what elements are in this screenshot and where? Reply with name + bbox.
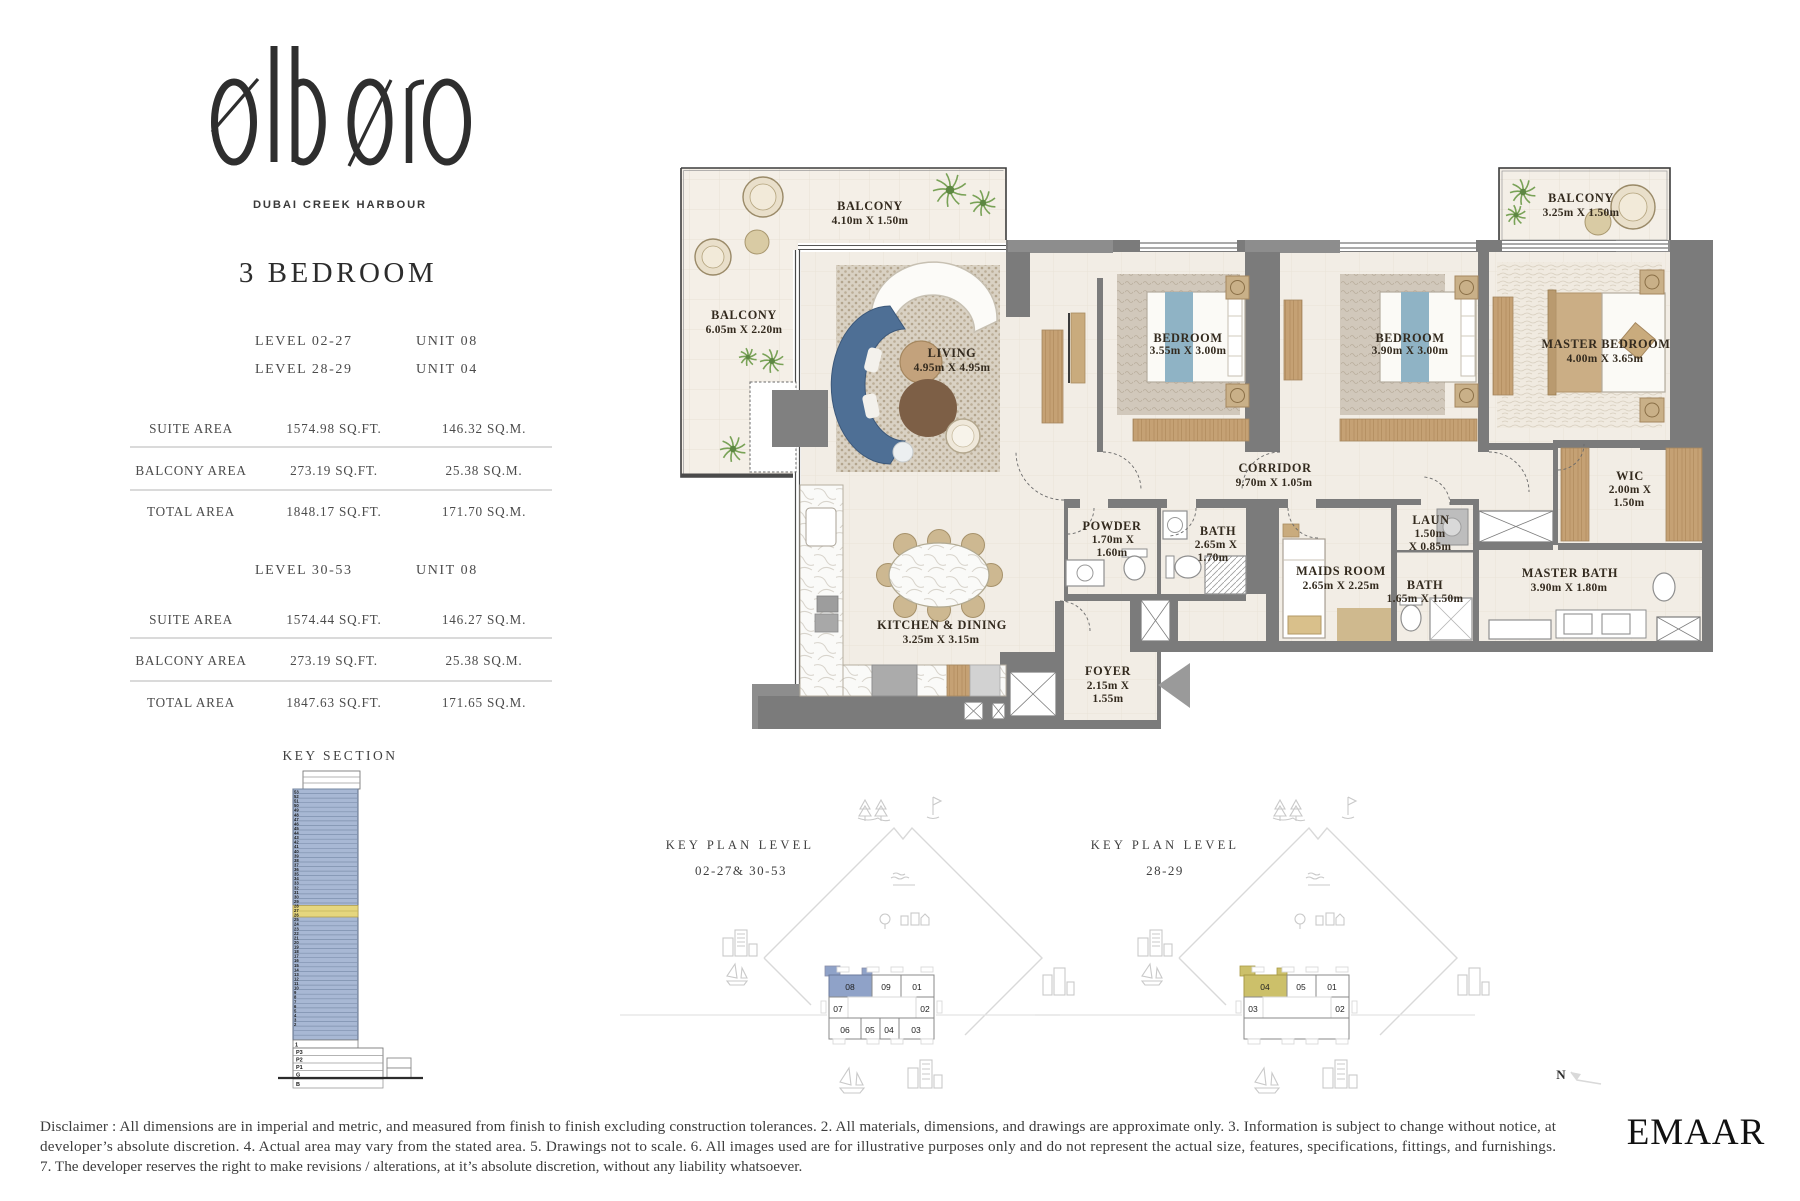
svg-text:P2: P2 [296, 1058, 303, 1064]
svg-text:N: N [1556, 1067, 1566, 1082]
svg-text:3.90m X 1.80m: 3.90m X 1.80m [1531, 582, 1608, 594]
svg-text:LEVEL 02-27: LEVEL 02-27 [255, 334, 353, 349]
svg-text:3.55m X 3.00m: 3.55m X 3.00m [1150, 345, 1227, 357]
svg-text:CORRIDOR: CORRIDOR [1238, 461, 1311, 475]
svg-text:BALCONY AREA: BALCONY AREA [135, 653, 246, 668]
svg-text:B: B [296, 1082, 300, 1088]
svg-text:171.70 SQ.M.: 171.70 SQ.M. [442, 504, 526, 519]
svg-text:BATH: BATH [1407, 578, 1443, 592]
svg-text:SUITE AREA: SUITE AREA [149, 421, 233, 436]
svg-text:28-29: 28-29 [1146, 863, 1184, 878]
svg-text:BATH: BATH [1200, 524, 1236, 538]
svg-text:06: 06 [840, 1025, 850, 1035]
svg-text:273.19 SQ.FT.: 273.19 SQ.FT. [290, 463, 378, 478]
svg-text:MASTER BATH: MASTER BATH [1522, 566, 1618, 580]
svg-text:FOYER: FOYER [1085, 664, 1131, 678]
svg-text:UNIT 04: UNIT 04 [416, 362, 478, 377]
svg-text:X 0.85m: X 0.85m [1409, 541, 1452, 553]
svg-text:KEY PLAN LEVEL: KEY PLAN LEVEL [1091, 838, 1240, 852]
svg-text:1.60m: 1.60m [1097, 547, 1128, 559]
svg-text:05: 05 [1296, 982, 1306, 992]
svg-text:P3: P3 [296, 1050, 303, 1056]
svg-text:Disclaimer : All dimensions ar: Disclaimer : All dimensions are in imper… [40, 1118, 1557, 1135]
svg-text:BALCONY: BALCONY [1548, 191, 1614, 205]
svg-text:7. The developer reserves the: 7. The developer reserves the right to m… [40, 1158, 802, 1175]
svg-text:developer’s absolute discretio: developer’s absolute discretion. 4. Actu… [40, 1138, 1556, 1155]
svg-text:1847.63 SQ.FT.: 1847.63 SQ.FT. [286, 695, 381, 710]
svg-text:WIC: WIC [1616, 469, 1644, 483]
svg-text:POWDER: POWDER [1083, 519, 1142, 533]
svg-text:01: 01 [1327, 982, 1337, 992]
svg-text:3 BEDROOM: 3 BEDROOM [239, 257, 437, 289]
svg-text:03: 03 [911, 1025, 921, 1035]
svg-text:DUBAI CREEK HARBOUR: DUBAI CREEK HARBOUR [253, 199, 427, 211]
svg-text:2.00m X: 2.00m X [1609, 484, 1652, 496]
svg-text:146.32 SQ.M.: 146.32 SQ.M. [442, 421, 526, 436]
svg-text:3.90m X 3.00m: 3.90m X 3.00m [1372, 345, 1449, 357]
svg-text:02: 02 [1335, 1004, 1345, 1014]
svg-text:1.70m X: 1.70m X [1092, 534, 1135, 546]
svg-text:1574.44 SQ.FT.: 1574.44 SQ.FT. [286, 612, 381, 627]
svg-text:LEVEL 30-53: LEVEL 30-53 [255, 563, 353, 578]
svg-text:1.65m X 1.50m: 1.65m X 1.50m [1387, 593, 1464, 605]
svg-text:UNIT 08: UNIT 08 [416, 334, 478, 349]
svg-text:4.00m X 3.65m: 4.00m X 3.65m [1567, 353, 1644, 365]
svg-text:1.50m: 1.50m [1614, 497, 1645, 509]
svg-text:KEY SECTION: KEY SECTION [282, 748, 397, 763]
svg-text:9.70m X 1.05m: 9.70m X 1.05m [1236, 477, 1313, 489]
svg-text:3.25m X 3.15m: 3.25m X 3.15m [903, 634, 980, 646]
svg-text:08: 08 [845, 982, 855, 992]
svg-text:BALCONY: BALCONY [837, 199, 903, 213]
svg-text:4.10m X 1.50m: 4.10m X 1.50m [832, 215, 909, 227]
svg-text:09: 09 [881, 982, 891, 992]
svg-text:BALCONY AREA: BALCONY AREA [135, 463, 246, 478]
svg-text:LAUN: LAUN [1412, 513, 1449, 527]
svg-text:04: 04 [884, 1025, 894, 1035]
svg-text:MASTER BEDROOM: MASTER BEDROOM [1542, 337, 1671, 351]
svg-text:6.05m X 2.20m: 6.05m X 2.20m [706, 324, 783, 336]
svg-text:04: 04 [1260, 982, 1270, 992]
svg-text:05: 05 [865, 1025, 875, 1035]
svg-text:UNIT 08: UNIT 08 [416, 563, 478, 578]
svg-text:TOTAL AREA: TOTAL AREA [147, 504, 235, 519]
svg-text:01: 01 [912, 982, 922, 992]
svg-text:4.95m X 4.95m: 4.95m X 4.95m [914, 362, 991, 374]
svg-text:171.65 SQ.M.: 171.65 SQ.M. [442, 695, 526, 710]
svg-text:02-27& 30-53: 02-27& 30-53 [695, 863, 787, 878]
svg-text:02: 02 [920, 1004, 930, 1014]
svg-text:BALCONY: BALCONY [711, 308, 777, 322]
svg-text:2.65m X 2.25m: 2.65m X 2.25m [1303, 580, 1380, 592]
svg-text:LEVEL 28-29: LEVEL 28-29 [255, 362, 353, 377]
svg-text:03: 03 [1248, 1004, 1258, 1014]
svg-text:KEY PLAN LEVEL: KEY PLAN LEVEL [666, 838, 815, 852]
svg-text:1.70m: 1.70m [1198, 552, 1229, 564]
svg-text:25.38 SQ.M.: 25.38 SQ.M. [446, 653, 523, 668]
svg-text:EMAAR: EMAAR [1627, 1112, 1766, 1153]
svg-text:1574.98 SQ.FT.: 1574.98 SQ.FT. [286, 421, 381, 436]
svg-text:2.65m X: 2.65m X [1195, 539, 1238, 551]
svg-text:BEDROOM: BEDROOM [1375, 331, 1444, 345]
svg-text:1.50m: 1.50m [1415, 528, 1446, 540]
svg-text:2.15m X: 2.15m X [1087, 680, 1130, 692]
svg-text:1.55m: 1.55m [1093, 693, 1124, 705]
svg-text:TOTAL AREA: TOTAL AREA [147, 695, 235, 710]
svg-text:25.38 SQ.M.: 25.38 SQ.M. [446, 463, 523, 478]
svg-text:LIVING: LIVING [928, 346, 977, 360]
svg-text:BEDROOM: BEDROOM [1153, 331, 1222, 345]
svg-text:MAIDS ROOM: MAIDS ROOM [1296, 564, 1386, 578]
svg-text:273.19 SQ.FT.: 273.19 SQ.FT. [290, 653, 378, 668]
svg-text:07: 07 [833, 1004, 843, 1014]
svg-text:P1: P1 [296, 1065, 303, 1071]
svg-text:3.25m X 1.50m: 3.25m X 1.50m [1543, 207, 1620, 219]
svg-text:KITCHEN & DINING: KITCHEN & DINING [877, 618, 1007, 632]
svg-text:1848.17 SQ.FT.: 1848.17 SQ.FT. [286, 504, 381, 519]
svg-text:146.27 SQ.M.: 146.27 SQ.M. [442, 612, 526, 627]
svg-text:SUITE AREA: SUITE AREA [149, 612, 233, 627]
